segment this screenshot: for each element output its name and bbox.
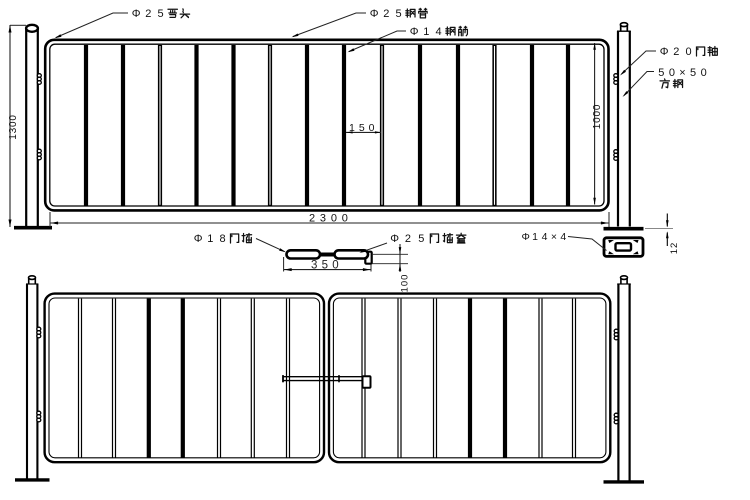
svg-text:×: ×: [551, 231, 557, 243]
svg-text:350: 350: [311, 259, 343, 271]
svg-text:1300: 1300: [8, 114, 19, 139]
svg-text:5: 5: [395, 8, 401, 20]
svg-text:Φ: Φ: [522, 231, 530, 243]
svg-text:5: 5: [157, 8, 163, 20]
svg-text:2: 2: [145, 8, 151, 20]
svg-text:2300: 2300: [309, 212, 353, 224]
svg-text:1: 1: [207, 233, 213, 245]
svg-text:1: 1: [423, 26, 429, 38]
svg-text:100: 100: [400, 274, 411, 293]
svg-text:0: 0: [669, 67, 675, 79]
svg-text:Φ: Φ: [660, 46, 669, 58]
svg-text:Φ: Φ: [132, 8, 141, 20]
svg-text:1: 1: [532, 231, 538, 243]
svg-text:0: 0: [685, 46, 691, 58]
svg-text:5: 5: [690, 67, 696, 79]
svg-text:1000: 1000: [592, 104, 603, 129]
svg-text:×: ×: [679, 67, 685, 79]
svg-text:4: 4: [542, 231, 548, 243]
svg-text:2: 2: [383, 8, 389, 20]
svg-text:Φ: Φ: [370, 8, 379, 20]
svg-text:5: 5: [418, 233, 424, 245]
svg-text:5: 5: [658, 67, 664, 79]
svg-text:Φ: Φ: [390, 233, 399, 245]
svg-text:12: 12: [669, 242, 680, 255]
svg-text:Φ: Φ: [194, 233, 203, 245]
svg-text:8: 8: [219, 233, 225, 245]
svg-text:4: 4: [560, 231, 566, 243]
svg-text:150: 150: [349, 122, 379, 134]
svg-text:2: 2: [673, 46, 679, 58]
svg-text:4: 4: [435, 26, 441, 38]
svg-text:0: 0: [701, 67, 707, 79]
svg-text:Φ: Φ: [410, 26, 419, 38]
svg-text:2: 2: [405, 233, 411, 245]
